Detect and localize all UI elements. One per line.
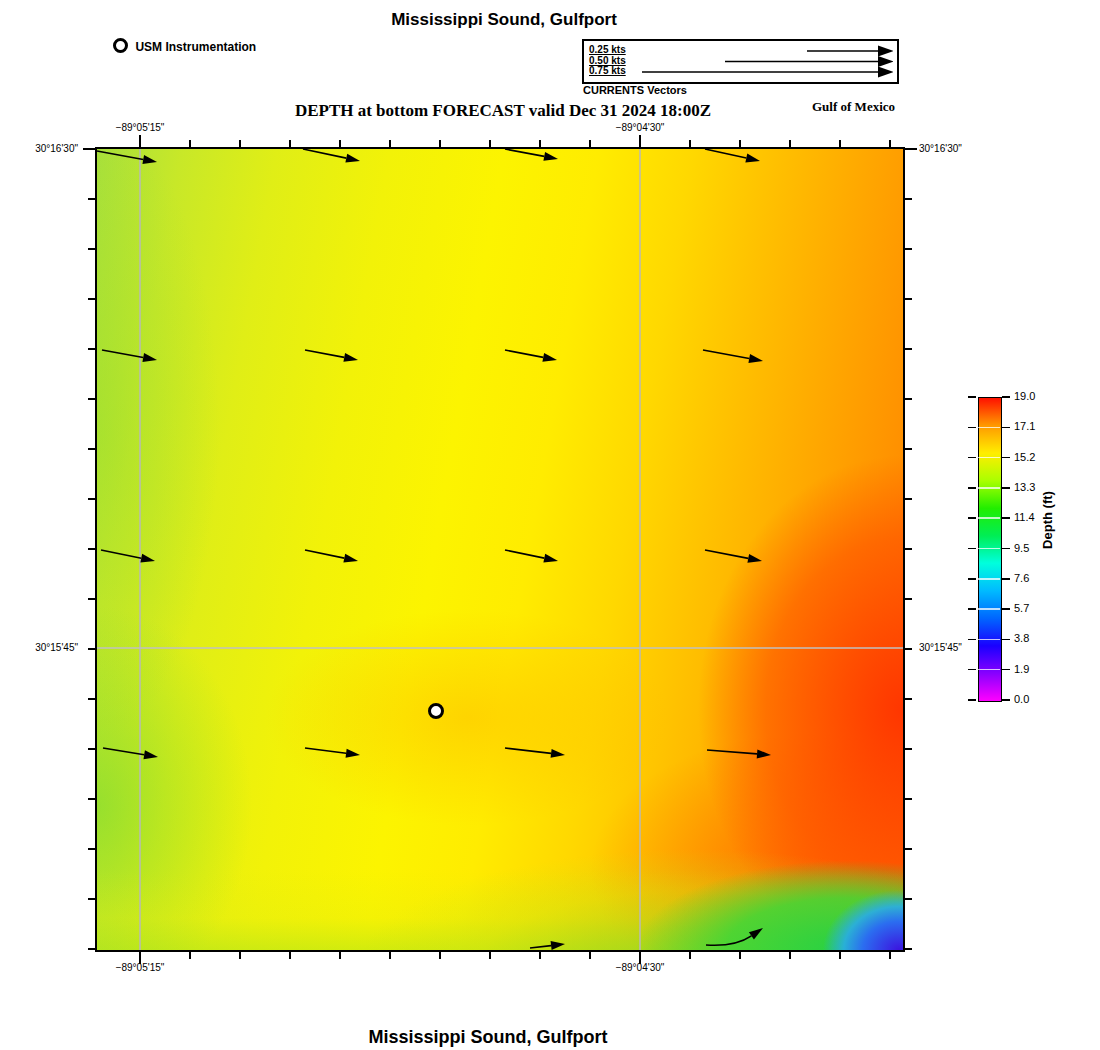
colorbar-separator — [978, 457, 1000, 459]
current-vector-shaft — [505, 748, 551, 753]
axis-minor-tick — [905, 498, 912, 500]
axis-minor-tick — [389, 952, 391, 959]
axis-major-tick — [139, 135, 141, 147]
axis-minor-tick — [839, 952, 841, 959]
region-label: Gulf of Mexico — [812, 99, 895, 115]
axis-minor-tick — [88, 248, 95, 250]
depth-heatmap — [97, 149, 903, 950]
current-vector-legend-box: 0.25 kts 0.50 kts 0.75 kts — [582, 39, 899, 84]
colorbar-tick — [968, 639, 976, 641]
axis-minor-tick — [189, 140, 191, 147]
axis-minor-tick — [905, 748, 912, 750]
axis-minor-tick — [88, 948, 95, 950]
colorbar-separator — [978, 608, 1000, 610]
colorbar-separator — [978, 517, 1000, 519]
station-legend-label: USM Instrumentation — [135, 40, 256, 54]
axis-minor-tick — [489, 140, 491, 147]
current-vector-head — [143, 750, 158, 759]
current-vector-head — [343, 554, 358, 563]
axis-major-tick — [83, 148, 95, 150]
axis-minor-tick — [689, 952, 691, 959]
station-circle-icon — [113, 38, 128, 53]
axis-minor-tick — [789, 952, 791, 959]
current-vector-shaft — [705, 149, 746, 158]
current-vector-shaft — [303, 149, 346, 158]
current-vector-head — [747, 554, 762, 563]
current-vector-head — [757, 749, 771, 758]
axis-minor-tick — [88, 798, 95, 800]
colorbar-tick-label: 1.9 — [1014, 663, 1029, 675]
axis-minor-tick — [905, 848, 912, 850]
axis-minor-tick — [739, 140, 741, 147]
axis-minor-tick — [289, 140, 291, 147]
axis-minor-tick — [88, 448, 95, 450]
current-vector-head — [878, 46, 893, 57]
axis-minor-tick — [905, 198, 912, 200]
axis-minor-tick — [88, 548, 95, 550]
current-vector-head — [343, 353, 358, 362]
axis-minor-tick — [88, 348, 95, 350]
axis-minor-tick — [88, 198, 95, 200]
colorbar-separator — [978, 427, 1000, 429]
station-legend: USM Instrumentation — [113, 37, 256, 55]
colorbar-tick — [1002, 548, 1010, 550]
axis-minor-tick — [905, 648, 912, 650]
station-marker-icon — [430, 705, 443, 718]
axis-minor-tick — [905, 548, 912, 550]
current-vector-head — [543, 152, 558, 161]
current-vector-shaft — [530, 946, 551, 948]
colorbar-tick-label: 9.5 — [1014, 542, 1029, 554]
colorbar-tick — [968, 548, 976, 550]
current-vector-head — [878, 56, 893, 67]
axis-minor-tick — [905, 898, 912, 900]
axis-minor-tick — [239, 140, 241, 147]
colorbar-tick — [968, 457, 976, 459]
colorbar-tick — [968, 427, 976, 429]
axis-minor-tick — [905, 298, 912, 300]
current-vector-head — [345, 154, 360, 163]
colorbar-separator — [978, 487, 1000, 489]
colorbar-tick — [1002, 639, 1010, 641]
colorbar-tick — [1002, 517, 1010, 519]
axis-minor-tick — [88, 398, 95, 400]
x-axis-tick-label: −89°04'30" — [595, 962, 685, 973]
axis-minor-tick — [88, 598, 95, 600]
current-vector-shaft — [97, 151, 143, 159]
current-vector-shaft — [505, 550, 544, 558]
axis-minor-tick — [439, 952, 441, 959]
y-axis-tick-label: 30°16'30" — [18, 143, 78, 154]
current-vector-shaft — [102, 350, 143, 357]
colorbar-tick-label: 19.0 — [1014, 390, 1035, 402]
colorbar-tick-label: 13.3 — [1014, 481, 1035, 493]
axis-minor-tick — [489, 952, 491, 959]
page-title: Mississippi Sound, Gulfport — [101, 10, 907, 30]
colorbar-tick — [968, 608, 976, 610]
forecast-title: DEPTH at bottom FORECAST valid Dec 31 20… — [100, 101, 906, 121]
colorbar-tick — [968, 699, 976, 701]
colorbar-tick — [1002, 457, 1010, 459]
current-vector-head — [142, 353, 157, 362]
axis-minor-tick — [589, 952, 591, 959]
axis-minor-tick — [905, 948, 912, 950]
colorbar-tick — [1002, 427, 1010, 429]
legend-arrows — [584, 41, 893, 82]
axis-minor-tick — [88, 648, 95, 650]
axis-major-tick — [905, 148, 917, 150]
axis-minor-tick — [589, 140, 591, 147]
current-vector-shaft — [305, 550, 344, 558]
x-axis-tick-label: −89°04'30" — [595, 122, 685, 133]
colorbar-tick — [1002, 699, 1010, 701]
axis-minor-tick — [905, 348, 912, 350]
current-vector-shaft — [305, 748, 346, 753]
current-vector-shaft — [505, 350, 543, 357]
axis-minor-tick — [339, 952, 341, 959]
current-vector-head — [142, 155, 157, 164]
axis-minor-tick — [905, 598, 912, 600]
current-vector-head — [749, 928, 763, 940]
axis-minor-tick — [88, 498, 95, 500]
colorbar-tick — [968, 669, 976, 671]
colorbar-tick — [1002, 578, 1010, 580]
vector-legend-caption: CURRENTS Vectors — [583, 84, 687, 96]
current-vector-shaft — [101, 550, 141, 558]
y-axis-tick-label: 30°16'30" — [919, 143, 979, 154]
axis-minor-tick — [339, 140, 341, 147]
current-vector-head — [551, 941, 565, 950]
current-vector-head — [878, 67, 893, 78]
axis-minor-tick — [789, 140, 791, 147]
current-vector-head — [551, 749, 565, 758]
colorbar-tick — [1002, 669, 1010, 671]
colorbar-separator — [978, 548, 1000, 550]
x-axis-tick-label: −89°05'15" — [95, 122, 185, 133]
current-vector-shaft — [505, 149, 544, 156]
axis-minor-tick — [905, 398, 912, 400]
axis-minor-tick — [88, 848, 95, 850]
colorbar-tick-label: 5.7 — [1014, 602, 1029, 614]
axis-minor-tick — [239, 952, 241, 959]
colorbar-tick — [1002, 608, 1010, 610]
colorbar-tick-label: 15.2 — [1014, 451, 1035, 463]
axis-minor-tick — [905, 698, 912, 700]
axis-minor-tick — [889, 952, 891, 959]
colorbar-tick-label: 11.4 — [1014, 511, 1035, 523]
axis-minor-tick — [689, 140, 691, 147]
current-vector-head — [346, 749, 360, 758]
y-axis-tick-label: 30°15'45" — [18, 642, 78, 653]
axis-minor-tick — [289, 952, 291, 959]
axis-minor-tick — [88, 298, 95, 300]
colorbar-axis-label: Depth (ft) — [1040, 460, 1056, 580]
axis-minor-tick — [905, 248, 912, 250]
axis-minor-tick — [739, 952, 741, 959]
colorbar-tick-label: 7.6 — [1014, 572, 1029, 584]
colorbar-tick — [968, 396, 976, 398]
axis-major-tick — [639, 135, 641, 147]
colorbar-tick — [968, 487, 976, 489]
current-vector-shaft — [706, 936, 751, 945]
current-vector-shaft — [707, 750, 757, 754]
y-axis-tick-label: 30°15'45" — [919, 642, 979, 653]
axis-minor-tick — [905, 448, 912, 450]
axis-minor-tick — [389, 140, 391, 147]
current-vector-head — [543, 554, 558, 563]
colorbar-tick — [1002, 396, 1010, 398]
axis-minor-tick — [88, 748, 95, 750]
current-vector-head — [745, 154, 760, 163]
colorbar — [978, 397, 1002, 702]
colorbar-separator — [978, 578, 1000, 580]
current-vector-shaft — [705, 550, 748, 558]
current-vector-head — [140, 554, 155, 563]
axis-minor-tick — [88, 698, 95, 700]
colorbar-tick-label: 3.8 — [1014, 632, 1029, 644]
current-vector-shaft — [703, 350, 749, 358]
axis-minor-tick — [539, 140, 541, 147]
axis-minor-tick — [539, 952, 541, 959]
colorbar-separator — [978, 669, 1000, 671]
colorbar-tick — [968, 578, 976, 580]
current-vector-shaft — [103, 748, 144, 755]
current-vector-shaft — [305, 350, 344, 357]
current-vector-head — [748, 354, 763, 363]
axis-minor-tick — [905, 798, 912, 800]
colorbar-tick-label: 17.1 — [1014, 420, 1035, 432]
current-vector-head — [542, 353, 557, 362]
map-overlay — [97, 149, 903, 950]
colorbar-tick — [968, 517, 976, 519]
colorbar-separator — [978, 639, 1000, 641]
axis-minor-tick — [88, 898, 95, 900]
x-axis-tick-label: −89°05'15" — [95, 962, 185, 973]
colorbar-tick-label: 0.0 — [1014, 693, 1029, 705]
axis-minor-tick — [839, 140, 841, 147]
colorbar-tick — [1002, 487, 1010, 489]
axis-minor-tick — [889, 140, 891, 147]
axis-minor-tick — [189, 952, 191, 959]
footer-title: Mississippi Sound, Gulfport — [85, 1027, 891, 1048]
axis-minor-tick — [439, 140, 441, 147]
